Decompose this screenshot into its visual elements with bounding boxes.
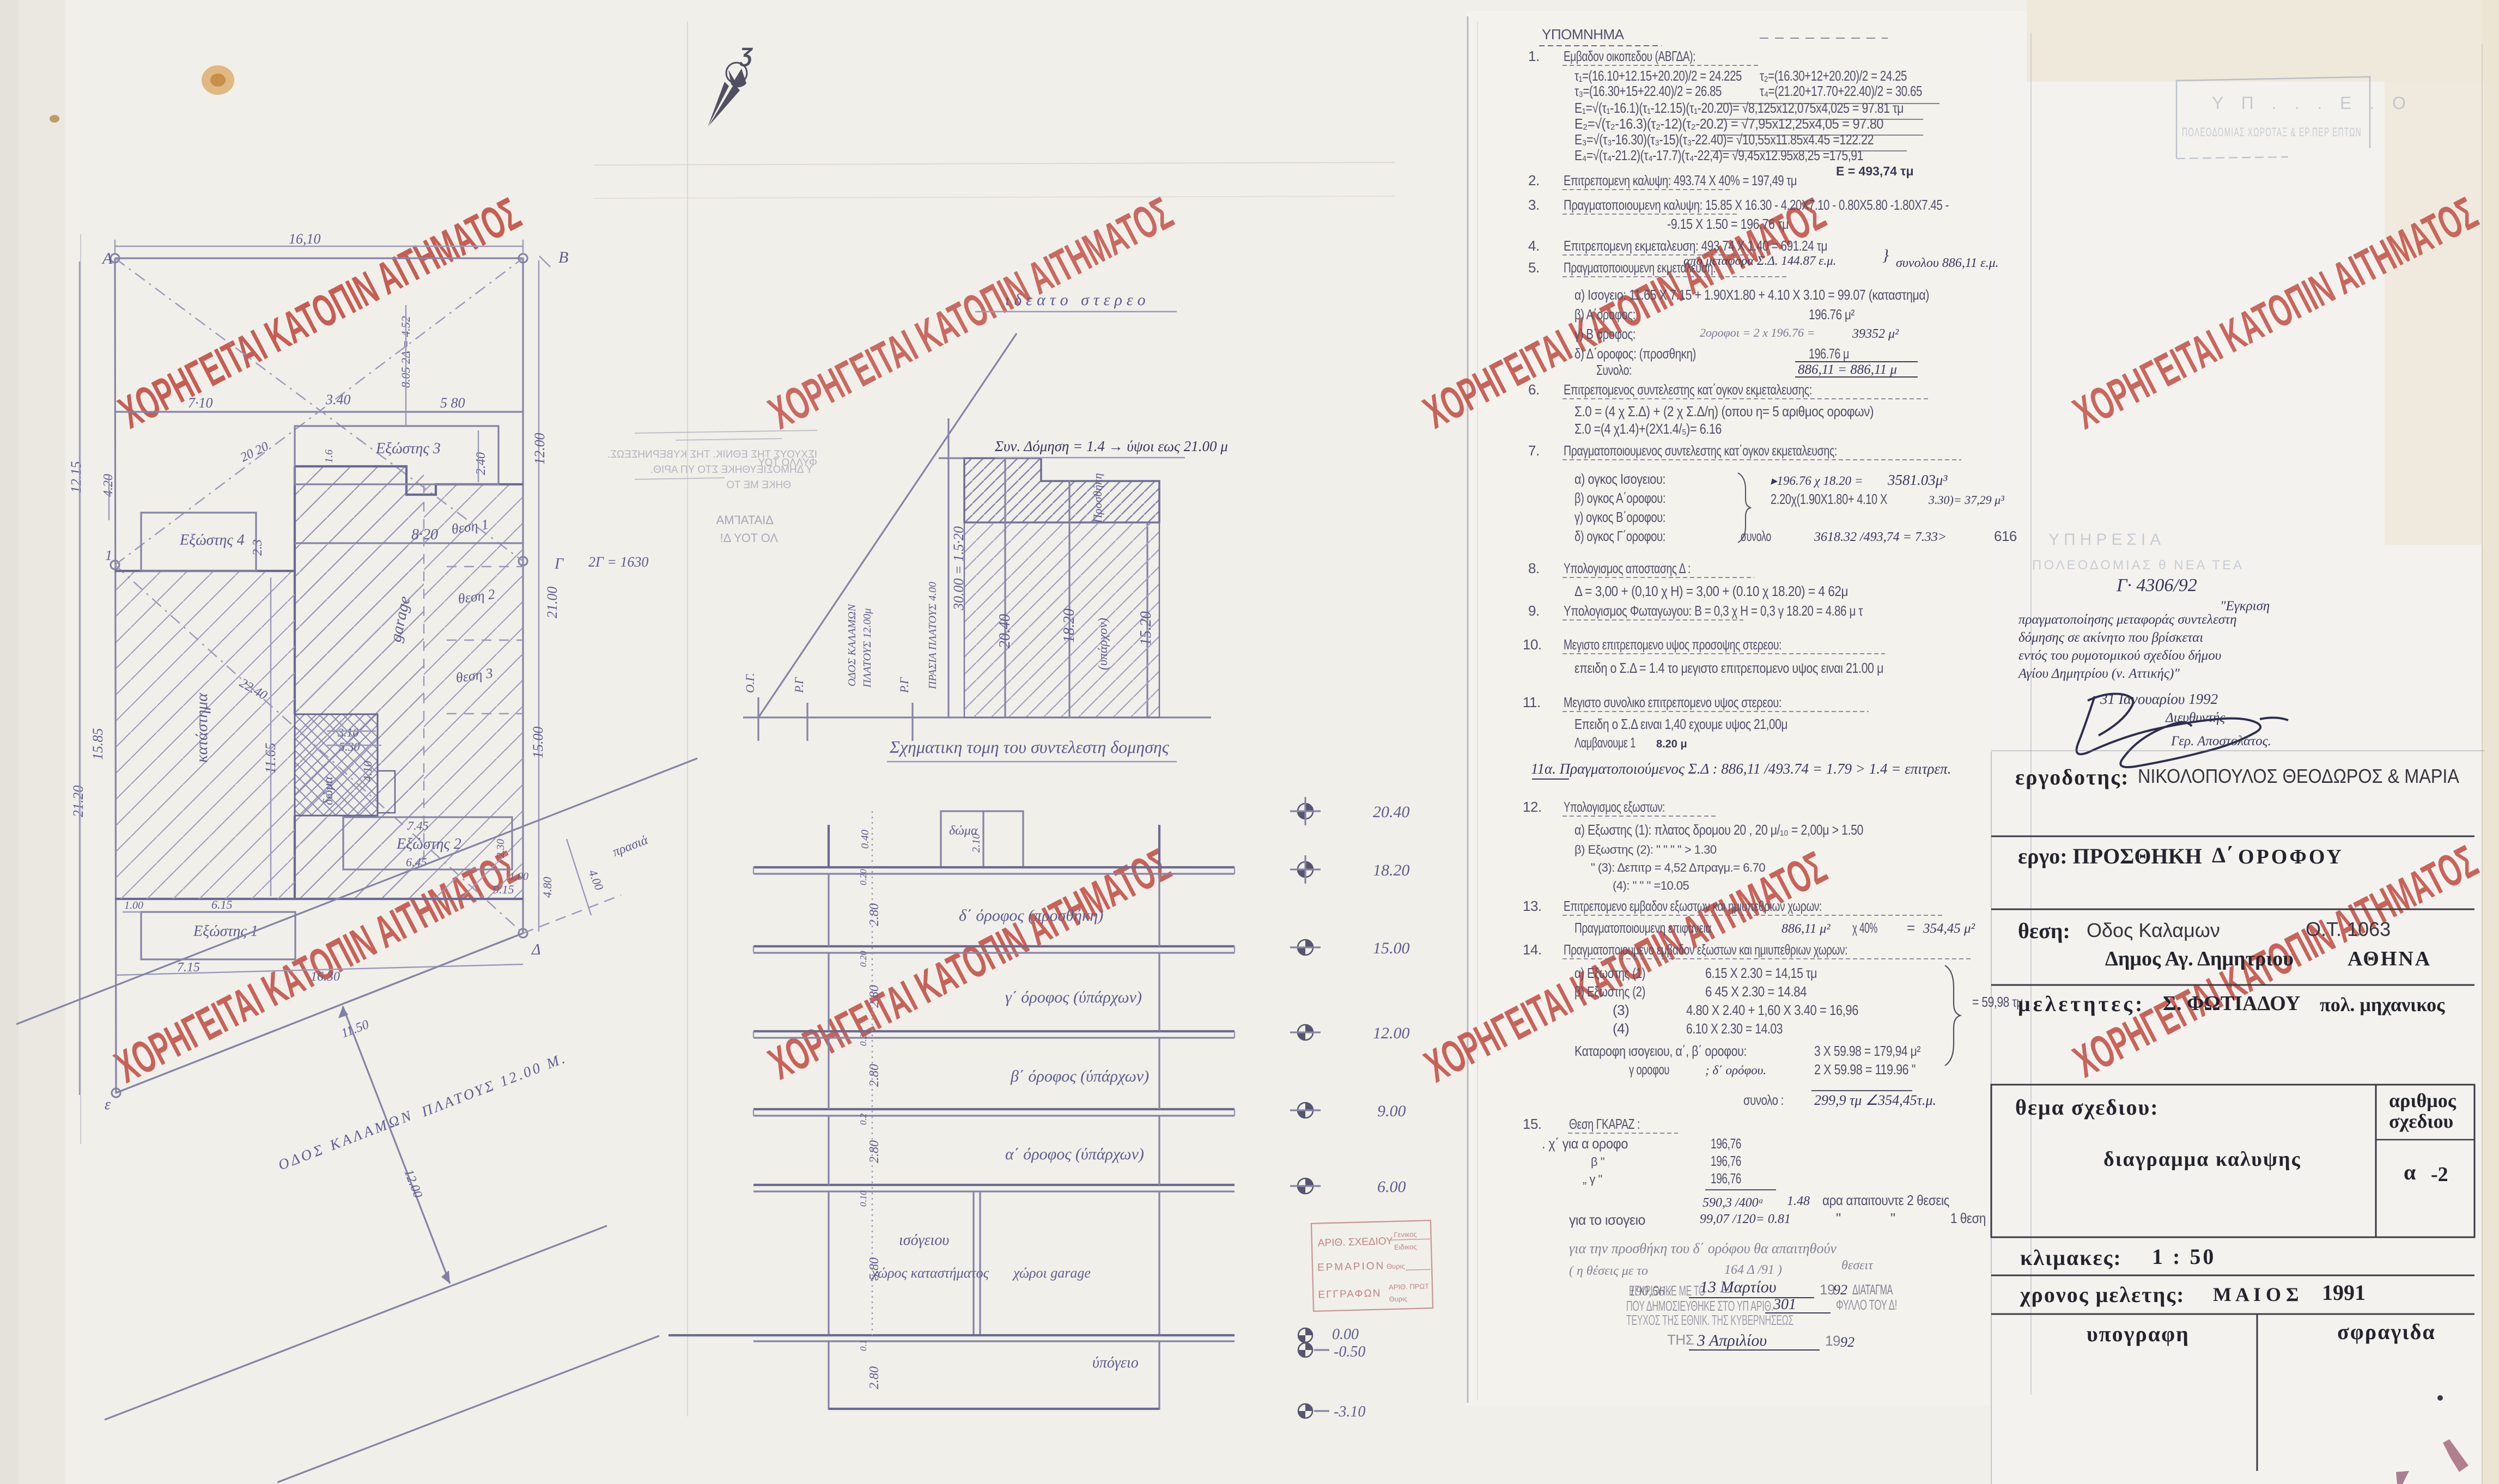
svg-text:δ΄ όροφος (προσθήκη): δ΄ όροφος (προσθήκη): [959, 907, 1103, 925]
svg-text:2οροφοι = 2 x 196.76 =: 2οροφοι = 2 x 196.76 =: [1700, 326, 1815, 339]
svg-text:ΟΔΟΣ ΚΑΛΑΜΩΝ: ΟΔΟΣ ΚΑΛΑΜΩΝ: [846, 603, 858, 686]
svg-text:δώμα: δώμα: [321, 776, 336, 805]
svg-text:Προσθήκη: Προσθήκη: [1091, 473, 1104, 524]
svg-text:9.: 9.: [1528, 603, 1540, 619]
svg-text:8.: 8.: [1528, 560, 1540, 576]
svg-text:11.: 11.: [1523, 694, 1541, 710]
svg-text:}: }: [1882, 246, 1889, 264]
svg-text:11α. Πραγματοποιούμενος Σ.Δ: 11α. Πραγματοποιούμενος Σ.Δ : 886,11 /49…: [1531, 761, 1951, 777]
svg-text:196.76 μ²: 196.76 μ²: [1809, 306, 1855, 323]
svg-text:θεμα σχεδιου:: θεμα σχεδιου:: [2015, 1095, 2159, 1120]
svg-text:14.: 14.: [1523, 941, 1542, 958]
svg-text:Υπολογισμος εξωστων:: Υπολογισμος εξωστων:: [1564, 799, 1665, 815]
svg-text:(4): " " " =10.05: (4): " " " =10.05: [1613, 879, 1689, 892]
svg-text:8·20: 8·20: [411, 526, 438, 543]
svg-text:301: 301: [1773, 1296, 1796, 1313]
svg-text:τ₂=(16.30+12+20.20)/2 = 24.25: τ₂=(16.30+12+20.20)/2 = 24.25: [1760, 68, 1907, 84]
svg-text:διαγραμμα καλυψης: διαγραμμα καλυψης: [2103, 1148, 2301, 1171]
svg-text:0.1: 0.1: [858, 1340, 868, 1351]
svg-text:6.00: 6.00: [1377, 1178, 1406, 1196]
svg-text:1.48: 1.48: [1787, 1194, 1810, 1208]
svg-text:2.80: 2.80: [867, 1064, 881, 1087]
svg-text:αρα απαιτουντε 2 θεσεις: αρα απαιτουντε 2 θεσεις: [1822, 1192, 1949, 1208]
svg-text:ΛΟ ΤΟΥ Δ!: ΛΟ ΤΟΥ Δ!: [720, 531, 779, 545]
svg-text:15.00: 15.00: [1373, 939, 1410, 957]
svg-text:18.20: 18.20: [1373, 861, 1410, 879]
svg-text:Εξώστης 4: Εξώστης 4: [179, 532, 245, 549]
svg-text:Επιτρεπομενη εκμεταλευση: 493: Επιτρεπομενη εκμεταλευση: 493.74 Χ 1.40 …: [1564, 238, 1827, 254]
svg-text:164 Δ /91 ): 164 Δ /91 ): [1724, 1263, 1782, 1277]
svg-text:Επιτρεπομενος συντελεστης κατ΄: Επιτρεπομενος συντελεστης κατ΄ογκον εκμε…: [1564, 381, 1812, 398]
svg-text:ισόγειου: ισόγειου: [899, 1232, 949, 1249]
svg-text:ύπόγειο: ύπόγειο: [1092, 1354, 1139, 1371]
svg-text:0.20: 0.20: [858, 951, 868, 967]
svg-text:ΕΡΜΑΡΙΟΝ: ΕΡΜΑΡΙΟΝ: [1317, 1260, 1385, 1273]
svg-text:21.20: 21.20: [70, 786, 86, 818]
svg-text:; δ΄ ορόφου.: ; δ΄ ορόφου.: [1705, 1063, 1766, 1077]
svg-text:15.00: 15.00: [530, 727, 546, 759]
svg-text:9.00: 9.00: [1377, 1102, 1406, 1120]
svg-text:6.15: 6.15: [211, 898, 233, 911]
svg-text:2 Χ 59.98 = 119.96 ": 2 Χ 59.98 = 119.96 ": [1814, 1061, 1916, 1078]
svg-text:Γενικος: Γενικος: [1394, 1230, 1417, 1239]
svg-text:ε: ε: [105, 1096, 111, 1113]
svg-text:ΠΡΑΣΙΑ ΠΛΑΤΟΥΣ 4.00: ΠΡΑΣΙΑ ΠΛΑΤΟΥΣ 4.00: [927, 582, 939, 690]
svg-text:=: =: [1907, 920, 1915, 936]
svg-text:σφραγιδα: σφραγιδα: [2337, 1319, 2436, 1344]
svg-text:Καταροφη ισογειου, α΄, β΄ ορο: Καταροφη ισογειου, α΄, β΄ οροφου:: [1574, 1043, 1747, 1059]
svg-text:2.10: 2.10: [970, 834, 982, 853]
svg-text:5.30: 5.30: [339, 740, 360, 753]
svg-text:Ο.Τ. 1063: Ο.Τ. 1063: [2306, 918, 2391, 940]
svg-text:(υπάρχον): (υπάρχον): [1096, 618, 1110, 670]
svg-text:B: B: [558, 248, 568, 266]
svg-text:0.10: 0.10: [858, 1190, 868, 1207]
svg-text:γ) Β΄οροφος:: γ) Β΄οροφος:: [1574, 326, 1635, 342]
svg-text:7.45: 7.45: [408, 819, 429, 832]
svg-text:επειδη ο Σ.Δ = 1.4 το μεγιστο: επειδη ο Σ.Δ = 1.4 το μεγιστο επιτρεπομε…: [1574, 660, 1883, 676]
svg-text:3618.32 /493,74 = 7.33>: 3618.32 /493,74 = 7.33>: [1814, 530, 1947, 544]
svg-text:Σ.0 = (4 χ Σ.Δ) + (2 χ Σ.Δ/η): Σ.0 = (4 χ Σ.Δ) + (2 χ Σ.Δ/η) (οπου η= 5…: [1574, 403, 1874, 419]
svg-text:2.80: 2.80: [867, 903, 881, 926]
svg-text:299,9 τμ ∠354,45τ.μ.: 299,9 τμ ∠354,45τ.μ.: [1814, 1092, 1936, 1108]
svg-text:Αγίου Δημητρίου (ν. Αττικής)": Αγίου Δημητρίου (ν. Αττικής)": [2017, 666, 2180, 681]
svg-text:χρονος μελετης:: χρονος μελετης:: [2020, 1282, 2185, 1307]
svg-text:": ": [1890, 1210, 1895, 1226]
svg-text:99,07 /120= 0.81: 99,07 /120= 0.81: [1700, 1212, 1791, 1226]
svg-text:0.2: 0.2: [858, 1113, 868, 1125]
svg-text:Υπολογισμος Φωταγωγου: Β = 0,3: Υπολογισμος Φωταγωγου: Β = 0,3 χ Η = 0,3…: [1564, 603, 1863, 619]
svg-text:. χ΄ για α οροφο: . χ΄ για α οροφο: [1542, 1135, 1628, 1152]
svg-text:" (3): Δεπιτρ = 4,52 Δπ: " (3): Δεπιτρ = 4,52 Δπραγμ.= 6.70: [1591, 861, 1765, 874]
svg-text:Ο.Γ.: Ο.Γ.: [743, 673, 757, 693]
svg-text:εργο: ΠΡΟΣΘΗΚΗ: εργο: ΠΡΟΣΘΗΚΗ: [2018, 844, 2202, 868]
svg-text:12.: 12.: [1523, 799, 1542, 815]
svg-text:Πραγματοποιουμενη επιφανεια: Πραγματοποιουμενη επιφανεια: [1574, 920, 1711, 936]
svg-text:τ₃=(16.30+15+22.40)/2 = 26.85: τ₃=(16.30+15+22.40)/2 = 26.85: [1574, 83, 1722, 99]
svg-text:7·10: 7·10: [188, 395, 213, 411]
svg-text:τ₄=(21.20+17.70+22.40)/2 = 30.: τ₄=(21.20+17.70+22.40)/2 = 30.65: [1760, 83, 1922, 99]
svg-text:Λαμβανουμε 1: Λαμβανουμε 1: [1574, 734, 1635, 751]
svg-text:ΔΙΑΤΑΓΜΑ: ΔΙΑΤΑΓΜΑ: [716, 513, 774, 527]
svg-text:7.: 7.: [1528, 442, 1540, 459]
svg-text:3 Απριλίου: 3 Απριλίου: [1697, 1331, 1767, 1349]
svg-text:θεση:: θεση:: [2018, 919, 2070, 943]
svg-text:για το ισογειο: για το ισογειο: [1569, 1212, 1645, 1228]
svg-text:κατάστημα: κατάστημα: [193, 692, 211, 763]
svg-text:δ) Δ΄οροφος: (προσθηκη): δ) Δ΄οροφος: (προσθηκη): [1574, 345, 1696, 362]
svg-text:ΦΥΛΛΟ ΤΟΥ Δ!: ΦΥΛΛΟ ΤΟΥ Δ!: [1836, 1297, 1897, 1313]
svg-text:2.80: 2.80: [867, 1140, 881, 1163]
svg-text:6.10 Χ 2.30 = 14.03: 6.10 Χ 2.30 = 14.03: [1686, 1020, 1783, 1037]
svg-text:Ε₂=√(τ₂-16.3)(τ₂-12)(τ₂-20.2): Ε₂=√(τ₂-16.3)(τ₂-12)(τ₂-20.2) = √7,95x12…: [1574, 115, 1883, 132]
svg-text:1.00: 1.00: [124, 899, 143, 911]
svg-text:β) Εξωστης (2): " " ": β) Εξωστης (2): " " " " > 1.30: [1574, 843, 1717, 856]
svg-text:3.: 3.: [1528, 197, 1540, 213]
svg-text:Σ.0 =(4 χ1.4)+(2Χ1.4/₅)= 6.16: Σ.0 =(4 χ1.4)+(2Χ1.4/₅)= 6.16: [1574, 421, 1722, 437]
svg-text:19: 19: [1820, 1281, 1835, 1298]
svg-text:19: 19: [1825, 1333, 1840, 1349]
svg-text:4.80: 4.80: [540, 877, 554, 898]
svg-text:15.: 15.: [1523, 1116, 1542, 1132]
svg-text:6.15 Χ 2.30 = 14,15 τμ: 6.15 Χ 2.30 = 14,15 τμ: [1705, 965, 1817, 981]
svg-text:0.20: 0.20: [858, 869, 868, 885]
svg-text:ΑΘΗΝΑ: ΑΘΗΝΑ: [2348, 947, 2431, 970]
svg-text:1 : 50: 1 : 50: [2152, 1244, 2216, 1269]
svg-text:ΘΗΚΕ ΜΕ ΤΟ: ΘΗΚΕ ΜΕ ΤΟ: [726, 479, 791, 491]
svg-text:2Γ = 1630: 2Γ = 1630: [588, 554, 648, 570]
svg-text:196,76: 196,76: [1711, 1135, 1741, 1152]
svg-text:12.15: 12.15: [68, 461, 84, 494]
svg-text:Υ Π . . . Ε . Ο: Υ Π . . . Ε . Ο: [2212, 93, 2412, 113]
svg-text:Συν. Δόμηση = 1.4 → ύψοι εως: Συν. Δόμηση = 1.4 → ύψοι εως 21.00 μ: [994, 438, 1228, 454]
svg-text:Γ: Γ: [554, 556, 564, 573]
svg-text:E = 493,74 τμ: E = 493,74 τμ: [1836, 164, 1914, 178]
svg-text:1.6: 1.6: [323, 449, 335, 463]
svg-text:ΑΡΙΘ. ΣΧΕΔΙΟΥ: ΑΡΙΘ. ΣΧΕΔΙΟΥ: [1318, 1236, 1394, 1249]
svg-text:Θυρις: Θυρις: [1387, 1262, 1405, 1270]
svg-text:2.40: 2.40: [474, 452, 488, 475]
svg-text:τ₁=(16.10+12.15+20.20)/2 = 24.: τ₁=(16.10+12.15+20.20)/2 = 24.225: [1574, 68, 1742, 84]
svg-text:αριθμος: αριθμος: [2389, 1090, 2457, 1111]
svg-text:Εξώστης 1: Εξώστης 1: [193, 923, 258, 940]
svg-text:16.30: 16.30: [311, 970, 340, 984]
svg-text:Ε₄=√(τ₄-21.2)(τ₄-17.7)(τ₄-22,4: Ε₄=√(τ₄-21.2)(τ₄-17.7)(τ₄-22,4)= √9,45x1…: [1574, 147, 1863, 163]
svg-text:Δ: Δ: [531, 941, 540, 958]
svg-text:2.30: 2.30: [495, 839, 507, 858]
svg-text:Γ· 4306/92: Γ· 4306/92: [2116, 575, 2197, 595]
svg-text:ΕΓΓΡΑΦΩΝ: ΕΓΓΡΑΦΩΝ: [1318, 1288, 1382, 1301]
svg-text:-3.10: -3.10: [1334, 1403, 1365, 1420]
svg-text:συνολο :: συνολο :: [1743, 1092, 1784, 1108]
svg-text:0.00: 0.00: [1332, 1326, 1359, 1343]
svg-text:εντός του ρυμοτομικού σχεδίου: εντός του ρυμοτομικού σχεδίου δήμου: [2018, 648, 2221, 663]
svg-text:ΤΕΥΧΟΣ ΤΗΣ ΕΘΝΙΚ. ΤΗΣ ΚΥΒΕΡΝΗΣ: ΤΕΥΧΟΣ ΤΗΣ ΕΘΝΙΚ. ΤΗΣ ΚΥΒΕΡΝΗΣΕΩΣ: [1626, 1312, 1793, 1328]
svg-text:β) ογκος Α΄οροφου:: β) ογκος Α΄οροφου:: [1574, 490, 1665, 506]
svg-text:χώρος καταστήματος: χώρος καταστήματος: [870, 1265, 989, 1281]
svg-text:590,3 /400ᵃ: 590,3 /400ᵃ: [1703, 1196, 1764, 1210]
svg-text:για την προσθήκη του δ΄ ορ: για την προσθήκη του δ΄ ορόφου θα απαιτη…: [1569, 1240, 1837, 1256]
svg-text:9.15: 9.15: [493, 883, 514, 896]
svg-text:δ) ογκος Γ΄οροφου:: δ) ογκος Γ΄οροφου:: [1574, 528, 1665, 544]
svg-text:Σχηματικη τομη του συντελεστη: Σχηματικη τομη του συντελεστη δομησης: [889, 737, 1170, 757]
svg-text:92: 92: [1840, 1334, 1855, 1350]
svg-text:886,11 μ²: 886,11 μ²: [1781, 922, 1831, 936]
svg-text:12.00: 12.00: [1373, 1024, 1410, 1042]
svg-text:10.: 10.: [1523, 636, 1542, 653]
svg-text:Επιτρεπομενη καλυψη: 493.74 Χ: Επιτρεπομενη καλυψη: 493.74 Χ 40% = 197,…: [1564, 172, 1797, 188]
svg-text:2.3: 2.3: [251, 539, 265, 556]
svg-text:15.85: 15.85: [90, 728, 106, 761]
svg-text:13.: 13.: [1523, 898, 1542, 914]
svg-text:21.00: 21.00: [544, 587, 560, 619]
svg-text:ιδεατο στερεο: ιδεατο στερεο: [1005, 291, 1150, 309]
svg-text:ΠΟΛΕΟΔΟΜΙΑΣ ΧΩΡΟΤΑΞ & ΕΡ.ΠΕΡ Ε: ΠΟΛΕΟΔΟΜΙΑΣ ΧΩΡΟΤΑΞ & ΕΡ.ΠΕΡ ΕΠΤΩΝ: [2182, 125, 2362, 139]
svg-text:-0.50: -0.50: [1334, 1343, 1365, 1360]
svg-text:ΦΥΛΛΟ ΤΟΥ: ΦΥΛΛΟ ΤΟΥ: [758, 457, 817, 469]
svg-text:ΠΟΛΕΟΔΟΜΙΑΣ θ ΝΕΑ ΤΕΑ: ΠΟΛΕΟΔΟΜΙΑΣ θ ΝΕΑ ΤΕΑ: [2032, 558, 2244, 573]
svg-text:Ʒ: Ʒ: [739, 44, 753, 67]
svg-text:Υπολογισμος αποστασης Δ :: Υπολογισμος αποστασης Δ :: [1564, 560, 1691, 576]
svg-text:▸196.76 χ 18.20 =: ▸196.76 χ 18.20 =: [1771, 474, 1863, 488]
svg-text:0.40: 0.40: [859, 830, 871, 849]
svg-text:1991: 1991: [2322, 1280, 2366, 1305]
svg-text:ΥΠΟΜΝΗΜΑ: ΥΠΟΜΝΗΜΑ: [1542, 26, 1625, 42]
svg-text:": ": [1836, 1210, 1841, 1226]
svg-text:Ειδικος: Ειδικος: [1394, 1243, 1417, 1251]
svg-text:Εξώστης 3: Εξώστης 3: [375, 440, 441, 457]
svg-text:Μεγιστο συνολικο επιτρεπομενο: Μεγιστο συνολικο επιτρεπομενο υψος στερε…: [1564, 694, 1781, 710]
svg-text:Δ = 3,00 + (0,10 χ Η) = 3,00 +: Δ = 3,00 + (0,10 χ Η) = 3,00 + (0.10 χ 1…: [1574, 583, 1848, 599]
svg-text:196,76: 196,76: [1711, 1170, 1741, 1187]
svg-text:0.2: 0.2: [858, 1034, 868, 1046]
svg-text:γ οροφου: γ οροφου: [1629, 1061, 1669, 1078]
svg-text:6 45 Χ 2.30 = 14.84: 6 45 Χ 2.30 = 14.84: [1705, 983, 1807, 1000]
svg-text:Οδος Καλαμων: Οδος Καλαμων: [2087, 919, 2220, 941]
svg-text:"Εγκριση: "Εγκριση: [2220, 599, 2270, 613]
svg-text:εργοδοτης:: εργοδοτης:: [2015, 765, 2129, 789]
svg-text:(3): (3): [1613, 1002, 1629, 1018]
svg-text:5.: 5.: [1528, 259, 1540, 276]
svg-text:8.20 μ: 8.20 μ: [1656, 738, 1687, 750]
svg-text:3581.03μ³: 3581.03μ³: [1887, 472, 1948, 488]
svg-text:ΔΙΑΤΑΓΜΑ: ΔΙΑΤΑΓΜΑ: [1852, 1281, 1893, 1298]
svg-text:Θεση ΓΚΑΡΑΖ :: Θεση ΓΚΑΡΑΖ :: [1569, 1116, 1640, 1132]
svg-text:20.40: 20.40: [996, 614, 1013, 648]
svg-text:39352 μ²: 39352 μ²: [1852, 327, 1899, 341]
svg-text:Δ΄: Δ΄: [2212, 843, 2233, 867]
svg-text:7.15: 7.15: [177, 960, 200, 975]
svg-text:ΑΡΙΘ. ΠΡΩΤ: ΑΡΙΘ. ΠΡΩΤ: [1389, 1282, 1429, 1291]
svg-text:α΄ όροφος (ύπάρχων): α΄ όροφος (ύπάρχων): [1005, 1145, 1144, 1163]
svg-text:1.: 1.: [1528, 48, 1540, 64]
svg-text:15.20: 15.20: [1138, 611, 1154, 646]
svg-text:2.20χ(1.90Χ1.80+ 4.10 Χ: 2.20χ(1.90Χ1.80+ 4.10 Χ: [1771, 491, 1887, 507]
svg-text:β΄ όροφος (ύπάρχων): β΄ όροφος (ύπάρχων): [1010, 1067, 1149, 1085]
svg-text:2.80: 2.80: [867, 985, 881, 1008]
svg-text:5.80: 5.80: [867, 1257, 881, 1280]
svg-text:Πραγματοποιουμενη καλυψη: 15.8: Πραγματοποιουμενη καλυψη: 15.85 Χ 16.30 …: [1564, 197, 1949, 213]
svg-text:α: α: [2404, 1160, 2416, 1184]
svg-text:4.80 Χ 2.40 + 1,60 Χ 3.40 = 1: 4.80 Χ 2.40 + 1,60 Χ 3.40 = 16,96: [1686, 1002, 1858, 1018]
svg-text:196.76 μ: 196.76 μ: [1809, 345, 1849, 362]
svg-text:Πραγματοποιουμενος συντελεστης: Πραγματοποιουμενος συντελεστης κατ΄ογκον…: [1564, 442, 1837, 459]
svg-text:σχεδιου: σχεδιου: [2389, 1110, 2453, 1132]
svg-text:α) Εξωστης (1): α) Εξωστης (1): [1574, 965, 1645, 981]
svg-text:3.30)= 37,29 μ³: 3.30)= 37,29 μ³: [1928, 493, 2004, 507]
svg-text:Γερ. Αποστολάτος.: Γερ. Αποστολάτος.: [2170, 734, 2271, 749]
svg-text:-9.15 Χ 1.50 = 196.76 τμ: -9.15 Χ 1.50 = 196.76 τμ: [1667, 216, 1789, 232]
svg-text:-2: -2: [2431, 1163, 2448, 1186]
svg-text:6.: 6.: [1528, 381, 1540, 398]
svg-text:Επειδη ο Σ.Δ ειναι 1,40 εχουμε: Επειδη ο Σ.Δ ειναι 1,40 εχουμε υψος 21,0…: [1574, 716, 1787, 732]
svg-text:Πραγματοποιουμενη εκμεταλευση:: Πραγματοποιουμενη εκμεταλευση:: [1564, 259, 1716, 276]
svg-text:2.80: 2.80: [867, 1366, 881, 1389]
svg-text:συνολο: συνολο: [1741, 528, 1771, 544]
svg-text:Ρ.Γ: Ρ.Γ: [792, 677, 806, 694]
svg-text:4.10: 4.10: [361, 761, 374, 782]
svg-text:β) Εξωστης (2): β) Εξωστης (2): [1574, 983, 1645, 1000]
svg-text:ΤΗΣ: ΤΗΣ: [1667, 1331, 1694, 1348]
svg-text:δόμησης σε ακίνητο που βρίσκε: δόμησης σε ακίνητο που βρίσκεται: [2018, 630, 2203, 645]
svg-text:3.10: 3.10: [337, 726, 359, 739]
svg-text:υπογραφη: υπογραφη: [2087, 1322, 2190, 1346]
svg-text:„ γ ": „ γ ": [1583, 1172, 1602, 1186]
svg-text:Πραγματοποιουμενο εμβαδον εξωσ: Πραγματοποιουμενο εμβαδον εξωστων και ημ…: [1564, 941, 1847, 958]
svg-text:12.00: 12.00: [532, 433, 548, 465]
svg-text:Εμβαδον οικοπεδου (ΑΒΓΔΑ):: Εμβαδον οικοπεδου (ΑΒΓΔΑ):: [1564, 48, 1695, 64]
svg-text:2.: 2.: [1528, 172, 1540, 188]
svg-text:συνολου 886,11 ε.μ.: συνολου 886,11 ε.μ.: [1896, 256, 1999, 270]
svg-text:Επιτρεπομενο εμβαδον εξωστων κ: Επιτρεπομενο εμβαδον εξωστων και ημιυπεθ…: [1564, 898, 1822, 914]
svg-text:β) Α΄οροφος:: β) Α΄οροφος:: [1574, 306, 1635, 323]
svg-text:ΟΡΟΦΟΥ: ΟΡΟΦΟΥ: [2238, 846, 2344, 868]
svg-text:16,10: 16,10: [289, 231, 321, 247]
svg-text:1 θεση: 1 θεση: [1950, 1210, 1986, 1226]
svg-text:5 80: 5 80: [440, 395, 465, 411]
svg-text:β ": β ": [1591, 1155, 1604, 1169]
svg-text:616: 616: [1994, 528, 2017, 544]
svg-text:πολ. μηχανικος: πολ. μηχανικος: [2320, 994, 2445, 1015]
svg-text:πραγματοποίησης μεταφοράς συν: πραγματοποίησης μεταφοράς συντελεστη: [2018, 612, 2237, 627]
svg-text:1.00: 1.00: [509, 871, 528, 883]
svg-text:3 Χ 59.98 = 179,94 μ²: 3 Χ 59.98 = 179,94 μ²: [1814, 1043, 1921, 1059]
svg-text:μελετητες:: μελετητες:: [2018, 992, 2145, 1016]
svg-text:92: 92: [1833, 1282, 1847, 1298]
svg-text:4.: 4.: [1528, 238, 1540, 254]
svg-text:Συνολο:: Συνολο:: [1596, 362, 1632, 378]
svg-text:χ 40%: χ 40%: [1852, 920, 1877, 936]
svg-text:γ) ογκος Β΄οροφου:: γ) ογκος Β΄οροφου:: [1574, 509, 1665, 525]
svg-text:18.20: 18.20: [1061, 609, 1078, 643]
svg-text:ΕΓΚΡΙΘΗΚΕ ΜΕ ΤΟ: ΕΓΚΡΙΘΗΚΕ ΜΕ ΤΟ: [1629, 1282, 1705, 1299]
svg-text:= 59,98 τμ: = 59,98 τμ: [1972, 994, 2023, 1010]
svg-text:α) Εξωστης (1): πλατος δρομου: α) Εξωστης (1): πλατος δρομου 20 , 20 μ/…: [1574, 822, 1863, 838]
svg-text:χώροι garage: χώροι garage: [1012, 1265, 1091, 1281]
svg-text:ΠΛΑΤΟΥΣ 12.00μ: ΠΛΑΤΟΥΣ 12.00μ: [861, 609, 873, 688]
svg-text:θεσειτ: θεσειτ: [1841, 1258, 1874, 1273]
svg-text:Μ Α Ι Ο Σ: Μ Α Ι Ο Σ: [2213, 1284, 2299, 1305]
svg-text:κλιμακες:: κλιμακες:: [2020, 1245, 2122, 1270]
svg-text:Σ. ΦΩΤΙΑΔΟΥ: Σ. ΦΩΤΙΑΔΟΥ: [2163, 992, 2300, 1015]
svg-text:886,11 = 886,11 μ: 886,11 = 886,11 μ: [1798, 362, 1897, 377]
svg-text:( η θέσεις με το: ( η θέσεις με το: [1569, 1264, 1648, 1278]
svg-text:Θυρις: Θυρις: [1389, 1294, 1407, 1303]
svg-text:Ρ.Γ: Ρ.Γ: [897, 677, 911, 694]
svg-text:α) ογκος Ισογειου:: α) ογκος Ισογειου:: [1574, 471, 1665, 487]
svg-text:α) Ισογειο: 11.65 Χ 7.15 + 1.9: α) Ισογειο: 11.65 Χ 7.15 + 1.90Χ1.80 + 4…: [1574, 287, 1929, 303]
svg-text:6.45: 6.45: [406, 855, 427, 869]
svg-text:A: A: [101, 250, 113, 267]
svg-text:(4): (4): [1613, 1020, 1629, 1037]
svg-text:20.40: 20.40: [1373, 803, 1410, 821]
svg-text:Εξώστης 2: Εξώστης 2: [396, 836, 461, 853]
svg-text:3.40: 3.40: [325, 392, 351, 408]
svg-text:1: 1: [105, 548, 112, 563]
svg-text:354,45 μ²: 354,45 μ²: [1923, 921, 1975, 936]
svg-text:Ε₁=√(τ₁-16.1)(τ₁-12.15)(τ₁-20.: Ε₁=√(τ₁-16.1)(τ₁-12.15)(τ₁-20.20)= √8,12…: [1574, 100, 1904, 116]
svg-text:Ε₃=√(τ₃-16.30)(τ₃-15)(τ₃-22.40: Ε₃=√(τ₃-16.30)(τ₃-15)(τ₃-22.40)= √10,55x…: [1574, 131, 1874, 148]
svg-text:ΝΙΚΟΛΟΠΟΥΛΟΣ ΘΕΟΔΩΡΟΣ & ΜΑΡΙΑ: ΝΙΚΟΛΟΠΟΥΛΟΣ ΘΕΟΔΩΡΟΣ & ΜΑΡΙΑ: [2138, 765, 2459, 787]
svg-text:Μεγιστο επιτρεπομενο υψος προσ: Μεγιστο επιτρεπομενο υψος προσοψης στερε…: [1564, 636, 1781, 653]
svg-text:13 Μαρτίου: 13 Μαρτίου: [1700, 1278, 1776, 1296]
svg-text:Δημος Αγ. Δημητριου: Δημος Αγ. Δημητριου: [2105, 947, 2294, 970]
svg-text:γ΄ όροφος (ύπάρχων): γ΄ όροφος (ύπάρχων): [1005, 988, 1142, 1006]
svg-text:ΥΠΗΡΕΣΙΑ: ΥΠΗΡΕΣΙΑ: [2048, 531, 2165, 549]
svg-text:196,76: 196,76: [1711, 1153, 1741, 1169]
